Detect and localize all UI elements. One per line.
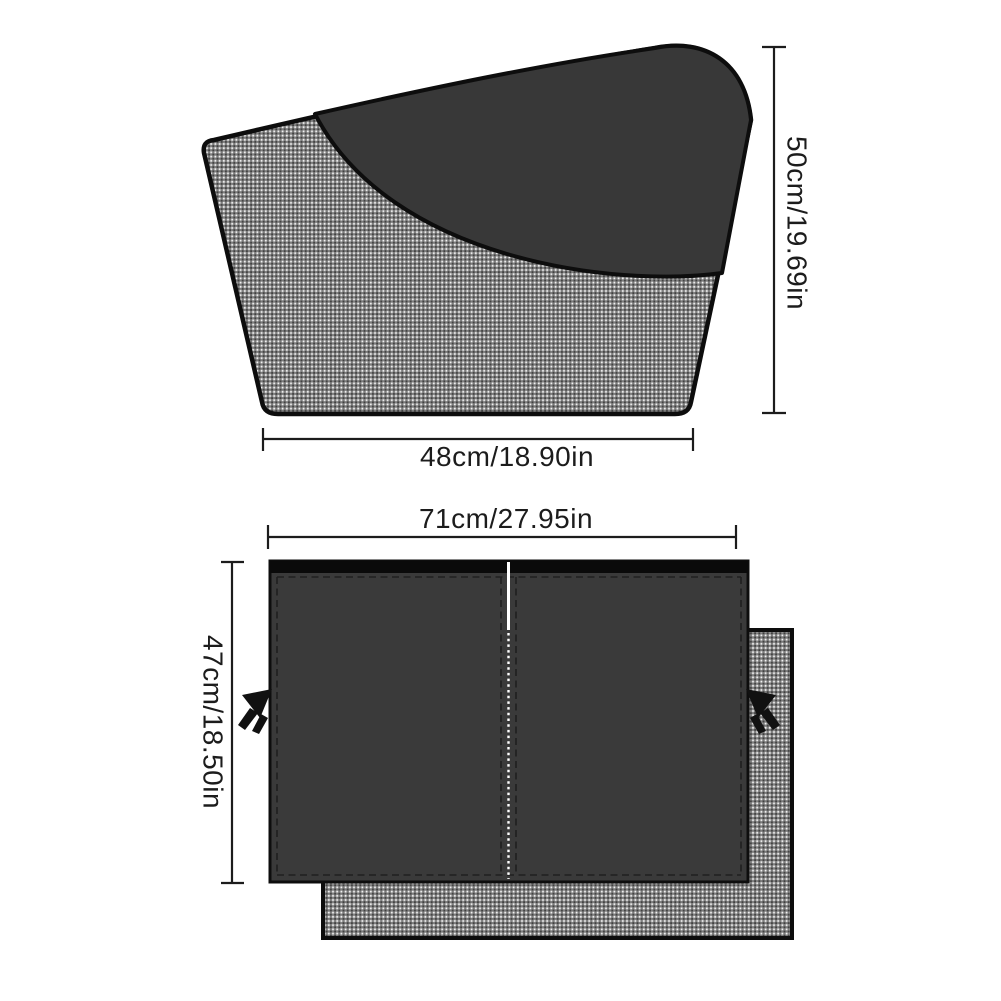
diagram-svg: 50cm/19.69in 48cm/18.90in	[0, 0, 1001, 1001]
curtain-width-label: 71cm/27.95in	[419, 503, 593, 534]
figure-sunshade: 50cm/19.69in 48cm/18.90in	[204, 46, 813, 472]
curtain-height-label: 47cm/18.50in	[198, 635, 229, 809]
sunshade-width-label: 48cm/18.90in	[420, 441, 594, 472]
figure-curtain: 71cm/27.95in 47cm/18.50in	[198, 503, 793, 938]
left-tassel-icon	[238, 689, 272, 734]
sunshade-height-label: 50cm/19.69in	[782, 136, 813, 310]
product-dimension-diagram: 50cm/19.69in 48cm/18.90in	[0, 0, 1001, 1001]
